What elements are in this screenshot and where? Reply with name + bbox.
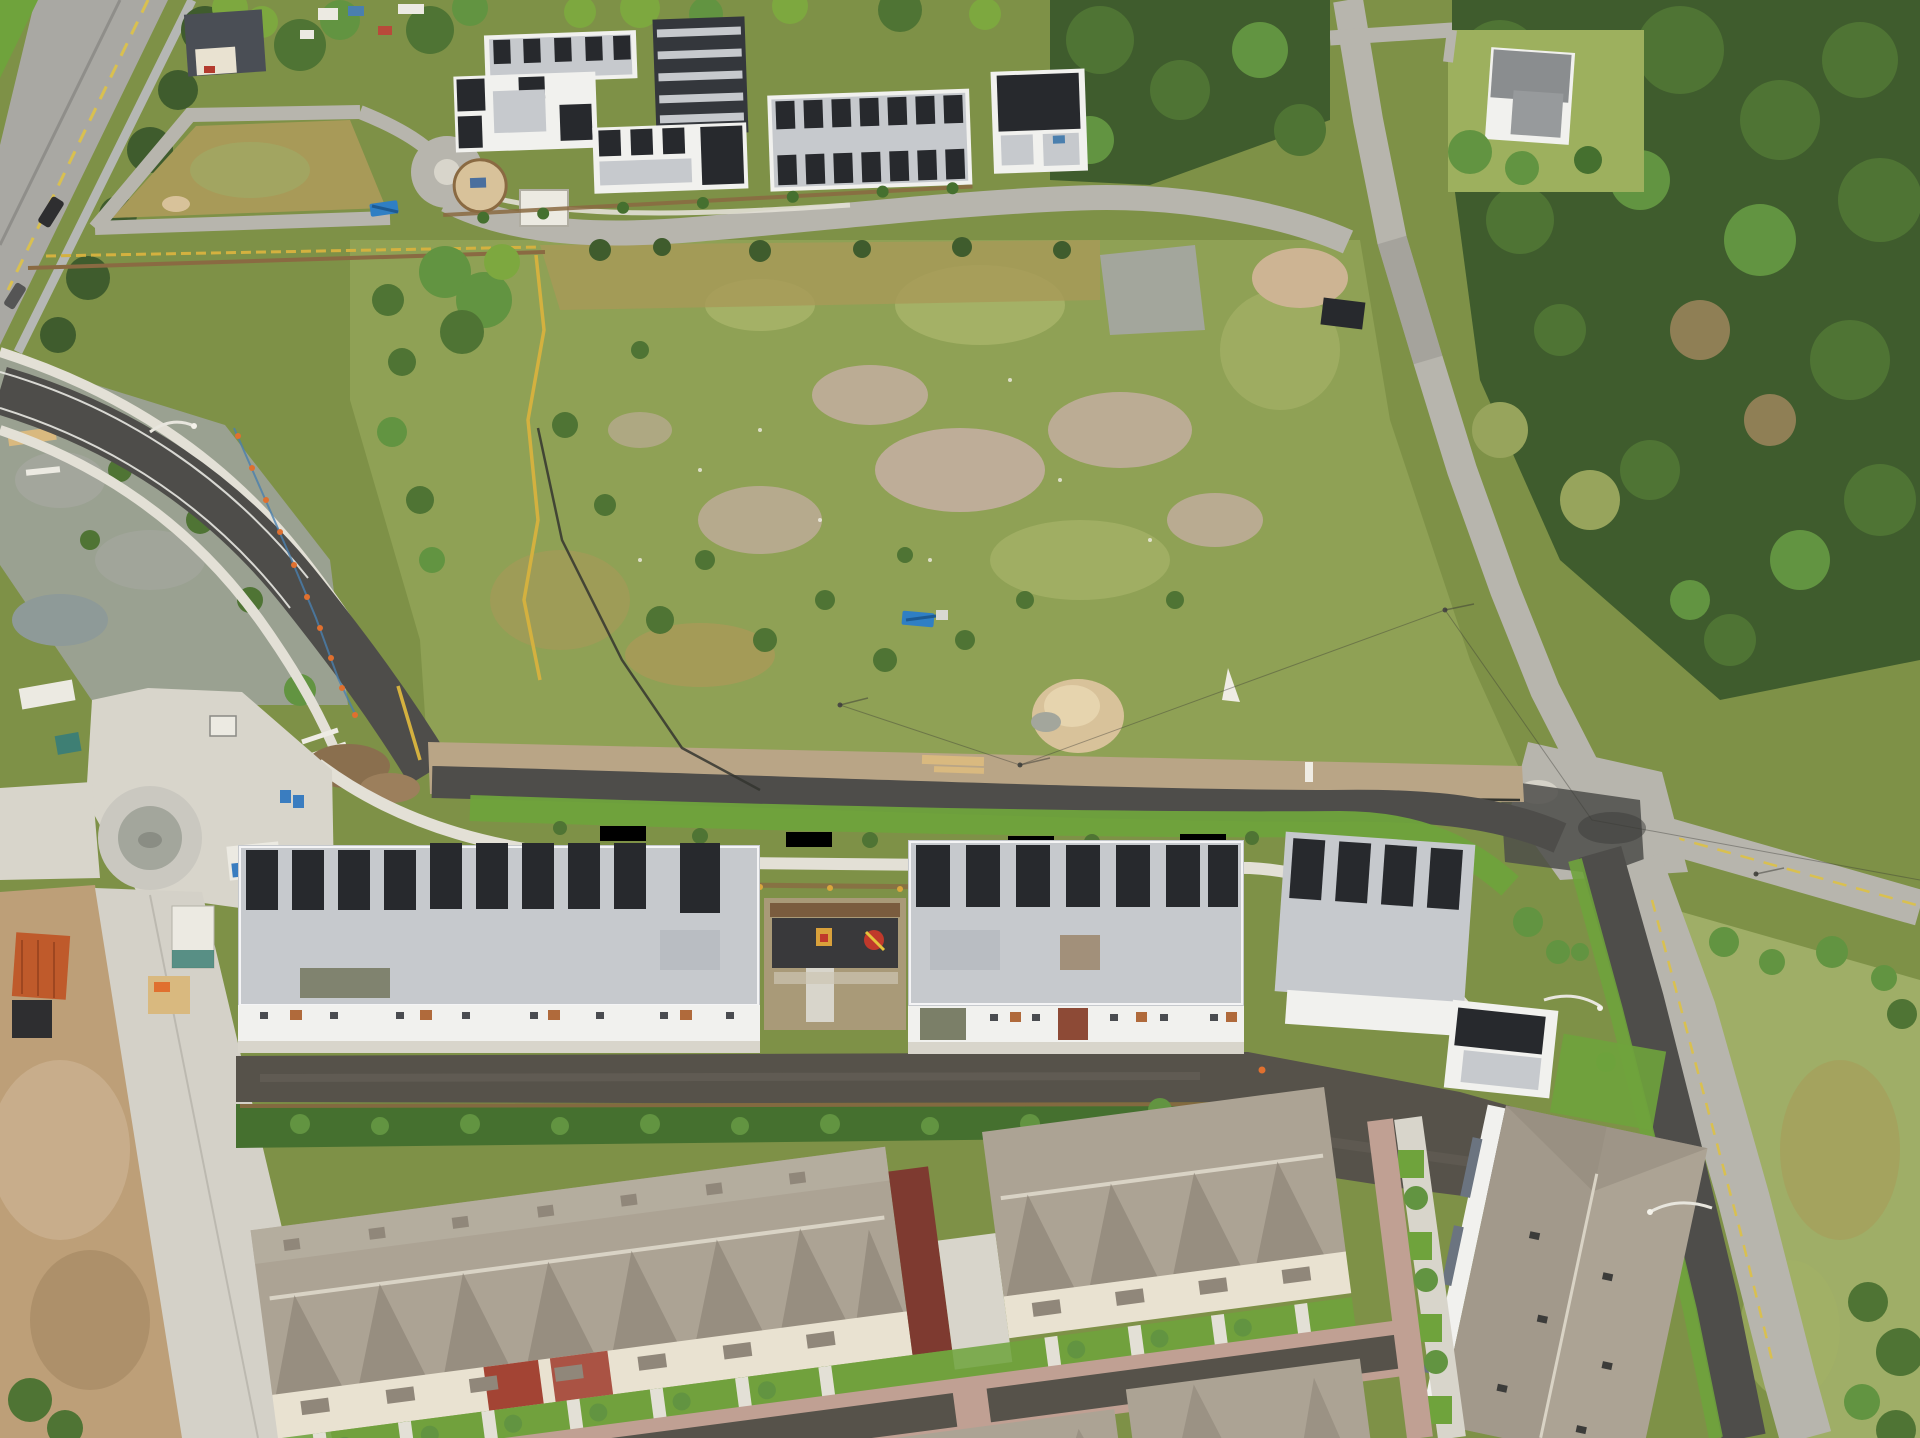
red-car (204, 66, 215, 73)
orange-container (12, 932, 70, 1000)
vacant-field (350, 240, 1520, 790)
dark-truck (12, 1000, 52, 1038)
pallet-stack (148, 976, 190, 1014)
rooftop-playground (764, 898, 906, 1030)
white-container (172, 906, 214, 968)
white-marker (1305, 762, 1313, 782)
townhouse-cluster-a (238, 843, 760, 1053)
sand-pile (162, 196, 190, 212)
corner-unit (1444, 1000, 1559, 1099)
gravel-pad (1100, 245, 1205, 335)
aerial-photo-svg (0, 0, 1920, 1438)
black-trailer (1320, 298, 1365, 330)
site-kiosk (210, 716, 236, 736)
top-left-building (453, 72, 598, 153)
tot-lot (453, 159, 507, 213)
top-stepped-building (652, 16, 748, 135)
top-row-building (767, 89, 972, 192)
detached-house-nw (184, 9, 266, 76)
top-east-block (990, 69, 1088, 174)
planter-bed (770, 903, 900, 917)
street-crossing (951, 1378, 991, 1434)
detached-house (1448, 30, 1644, 192)
townhouse-cluster-b (908, 840, 1244, 1054)
top-front-building (592, 122, 748, 193)
lane-cone (1259, 1067, 1266, 1074)
aerial-photo (0, 0, 1920, 1438)
